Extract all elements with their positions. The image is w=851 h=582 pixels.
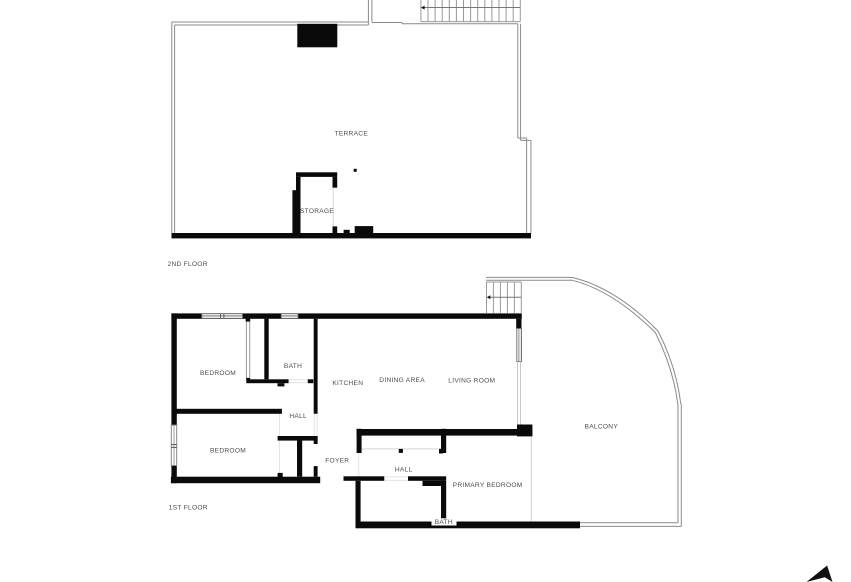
svg-text:PRIMARY BEDROOM: PRIMARY BEDROOM [453,482,523,489]
svg-text:KITCHEN: KITCHEN [332,380,363,387]
svg-text:BALCONY: BALCONY [585,423,619,430]
svg-text:2ND FLOOR: 2ND FLOOR [168,261,208,268]
svg-text:FOYER: FOYER [325,458,349,465]
svg-text:BEDROOM: BEDROOM [200,370,236,377]
svg-text:HALL: HALL [395,467,413,474]
svg-text:BATH: BATH [284,363,302,370]
svg-text:BATH: BATH [435,519,453,526]
svg-text:HALL: HALL [289,413,307,420]
svg-text:1ST FLOOR: 1ST FLOOR [169,505,208,512]
svg-text:STORAGE: STORAGE [300,208,334,215]
svg-text:TERRACE: TERRACE [335,131,369,138]
svg-text:DINING AREA: DINING AREA [379,377,425,384]
svg-text:BEDROOM: BEDROOM [210,448,246,455]
svg-text:LIVING ROOM: LIVING ROOM [448,377,495,384]
